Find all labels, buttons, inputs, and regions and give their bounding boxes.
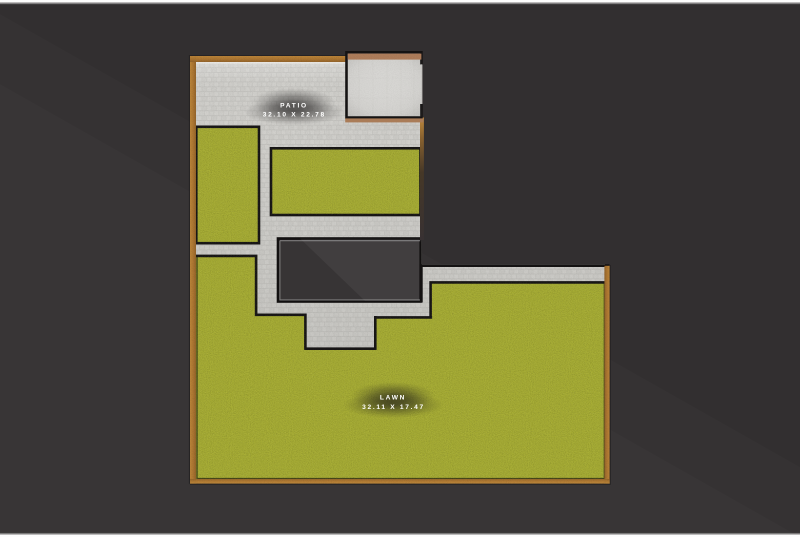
svg-text:PATIO: PATIO: [280, 102, 308, 109]
svg-text:32.10 X 22.78: 32.10 X 22.78: [263, 111, 326, 118]
svg-text:32.11 X 17.47: 32.11 X 17.47: [362, 404, 425, 411]
svg-text:LAWN: LAWN: [380, 395, 406, 402]
